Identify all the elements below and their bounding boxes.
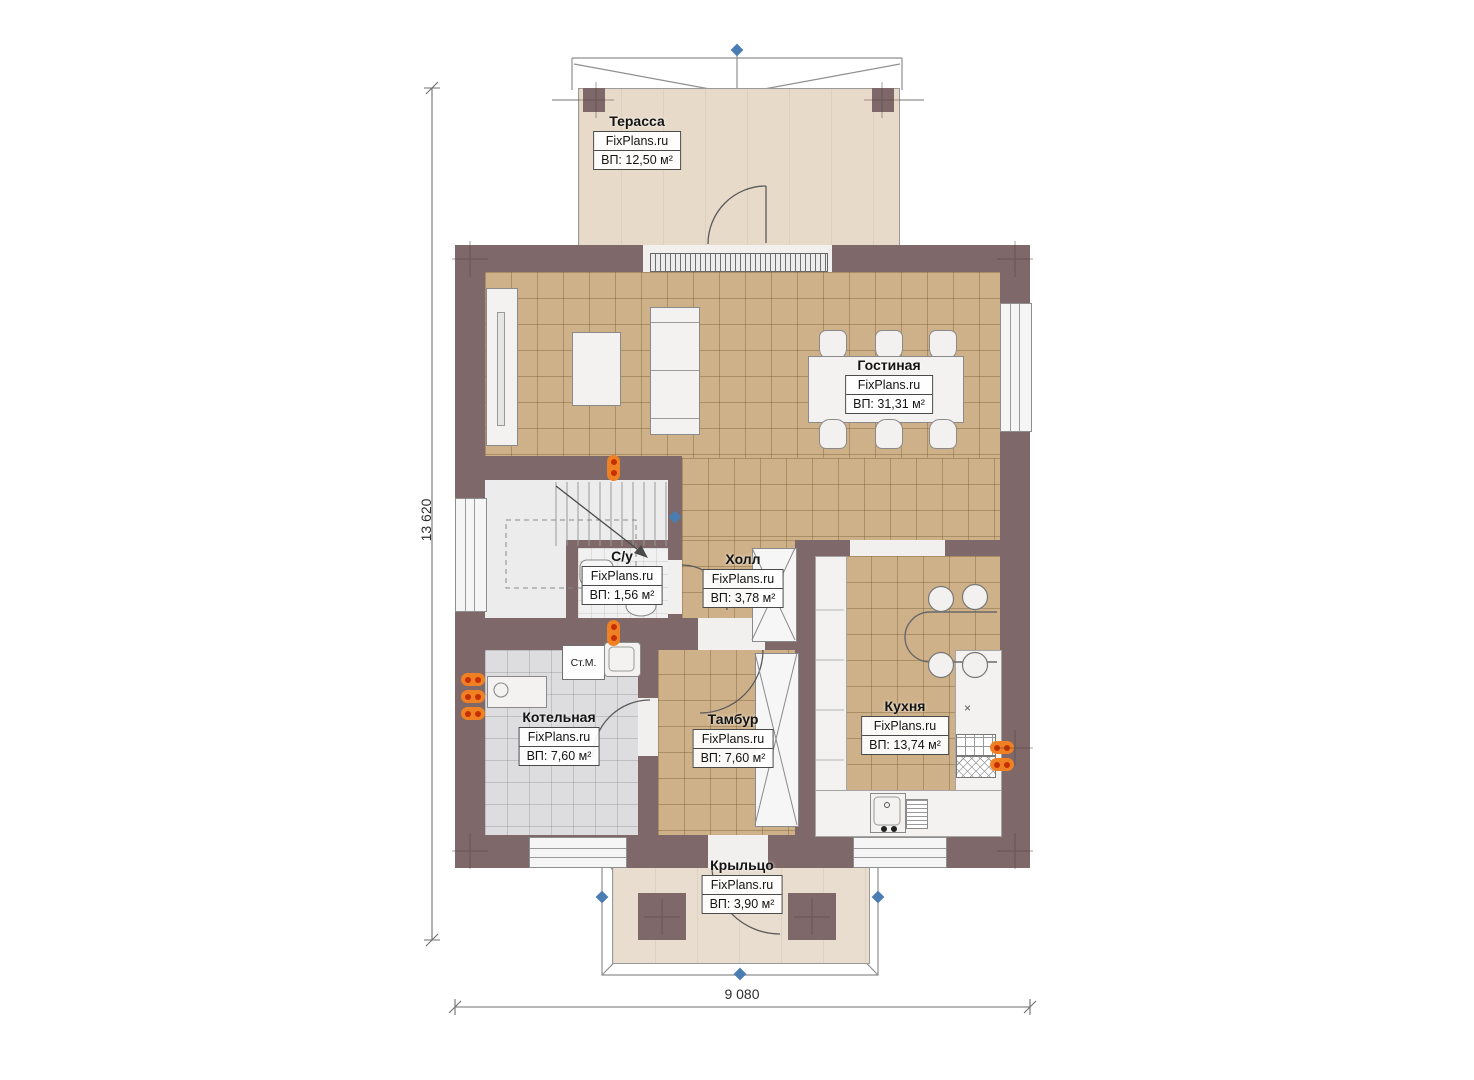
room-name: Холл bbox=[725, 552, 760, 567]
radiator bbox=[461, 707, 485, 720]
porch-post-left bbox=[638, 893, 686, 940]
radiator bbox=[990, 758, 1014, 771]
sofa-cushion-line bbox=[651, 370, 699, 371]
room-name: Крыльцо bbox=[710, 858, 774, 873]
kitchen-sink bbox=[870, 793, 906, 833]
room-info-box: FixPlans.ru ВП: 12,50 м² bbox=[593, 131, 681, 170]
hob-cross-mark: × bbox=[964, 701, 971, 715]
room-area: ВП: 12,50 м² bbox=[594, 150, 680, 169]
room-area: ВП: 3,90 м² bbox=[703, 894, 782, 913]
room-area: ВП: 31,31 м² bbox=[846, 394, 932, 413]
room-label-porch: Крыльцо FixPlans.ru ВП: 3,90 м² bbox=[702, 858, 783, 914]
wall-wc-left bbox=[566, 548, 578, 618]
boiler-counter bbox=[487, 676, 547, 708]
room-brand: FixPlans.ru bbox=[694, 730, 773, 748]
room-area: ВП: 1,56 м² bbox=[583, 585, 662, 604]
sofa bbox=[650, 307, 700, 435]
dimension-height: 13 620 bbox=[418, 490, 434, 550]
radiator bbox=[607, 620, 620, 646]
kitchen-sink-drainer bbox=[906, 799, 928, 829]
radiator bbox=[990, 741, 1014, 754]
room-label-living: Гостиная FixPlans.ru ВП: 31,31 м² bbox=[845, 358, 933, 414]
room-brand: FixPlans.ru bbox=[703, 876, 782, 894]
room-area: ВП: 13,74 м² bbox=[862, 735, 948, 754]
room-area: ВП: 7,60 м² bbox=[520, 746, 599, 765]
window-kitchen-south bbox=[853, 837, 947, 868]
room-brand: FixPlans.ru bbox=[520, 728, 599, 746]
porch-post-right bbox=[788, 893, 836, 940]
room-name: С/у bbox=[611, 549, 633, 564]
tv-panel bbox=[497, 312, 505, 426]
boiler-door-opening bbox=[638, 698, 658, 756]
radiator bbox=[461, 690, 485, 703]
room-label-tambur: Тамбур FixPlans.ru ВП: 7,60 м² bbox=[693, 712, 774, 768]
room-label-kitchen: Кухня FixPlans.ru ВП: 13,74 м² bbox=[861, 699, 949, 755]
room-area: ВП: 7,60 м² bbox=[694, 748, 773, 767]
wall-wc-top bbox=[566, 540, 668, 548]
terrace-post-right bbox=[872, 88, 894, 112]
window-boiler-south bbox=[529, 837, 627, 868]
room-area: ВП: 3,78 м² bbox=[704, 588, 783, 607]
room-name: Кухня bbox=[885, 699, 926, 714]
room-name: Тамбур bbox=[708, 712, 759, 727]
dining-chair bbox=[819, 419, 847, 449]
room-name: Котельная bbox=[522, 710, 595, 725]
room-name: Гостиная bbox=[857, 358, 920, 373]
terrace-post-left bbox=[583, 88, 605, 112]
washing-machine: Ст.М. bbox=[562, 645, 605, 680]
floor-plan-canvas: Ст.М. × bbox=[0, 0, 1474, 1080]
room-brand: FixPlans.ru bbox=[862, 717, 948, 735]
sofa-armrest-line-bottom bbox=[651, 418, 699, 419]
living-room-floor-south bbox=[682, 458, 1000, 540]
dining-chair bbox=[875, 419, 903, 449]
radiator bbox=[607, 455, 620, 481]
washing-machine-label: Ст.М. bbox=[571, 657, 597, 669]
room-name: Терасса bbox=[609, 114, 665, 129]
kitchen-passage-opening bbox=[850, 540, 945, 556]
window-east bbox=[1000, 303, 1032, 432]
room-brand: FixPlans.ru bbox=[846, 376, 932, 394]
sofa-armrest-line-top bbox=[651, 322, 699, 323]
room-label-terrace: Терасса FixPlans.ru ВП: 12,50 м² bbox=[593, 114, 681, 170]
room-info-box: FixPlans.ru ВП: 3,78 м² bbox=[703, 569, 784, 608]
boiler-sink bbox=[604, 642, 641, 677]
terrace-door-threshold bbox=[650, 253, 828, 272]
dimension-width: 9 080 bbox=[712, 986, 772, 1002]
room-brand: FixPlans.ru bbox=[704, 570, 783, 588]
room-info-box: FixPlans.ru ВП: 1,56 м² bbox=[582, 566, 663, 605]
coffee-table bbox=[572, 332, 621, 406]
room-label-boiler: Котельная FixPlans.ru ВП: 7,60 м² bbox=[519, 710, 600, 766]
room-info-box: FixPlans.ru ВП: 13,74 м² bbox=[861, 716, 949, 755]
wc-door-opening bbox=[668, 560, 682, 614]
room-label-wc: С/у FixPlans.ru ВП: 1,56 м² bbox=[582, 549, 663, 605]
room-brand: FixPlans.ru bbox=[583, 567, 662, 585]
room-info-box: FixPlans.ru ВП: 31,31 м² bbox=[845, 375, 933, 414]
room-info-box: FixPlans.ru ВП: 3,90 м² bbox=[702, 875, 783, 914]
dining-chair bbox=[929, 419, 957, 449]
room-info-box: FixPlans.ru ВП: 7,60 м² bbox=[519, 727, 600, 766]
radiator bbox=[461, 673, 485, 686]
window-west bbox=[455, 498, 487, 612]
room-label-hall: Холл FixPlans.ru ВП: 3,78 м² bbox=[703, 552, 784, 608]
wall-above-stairs bbox=[485, 456, 682, 480]
room-brand: FixPlans.ru bbox=[594, 132, 680, 150]
room-info-box: FixPlans.ru ВП: 7,60 м² bbox=[693, 729, 774, 768]
